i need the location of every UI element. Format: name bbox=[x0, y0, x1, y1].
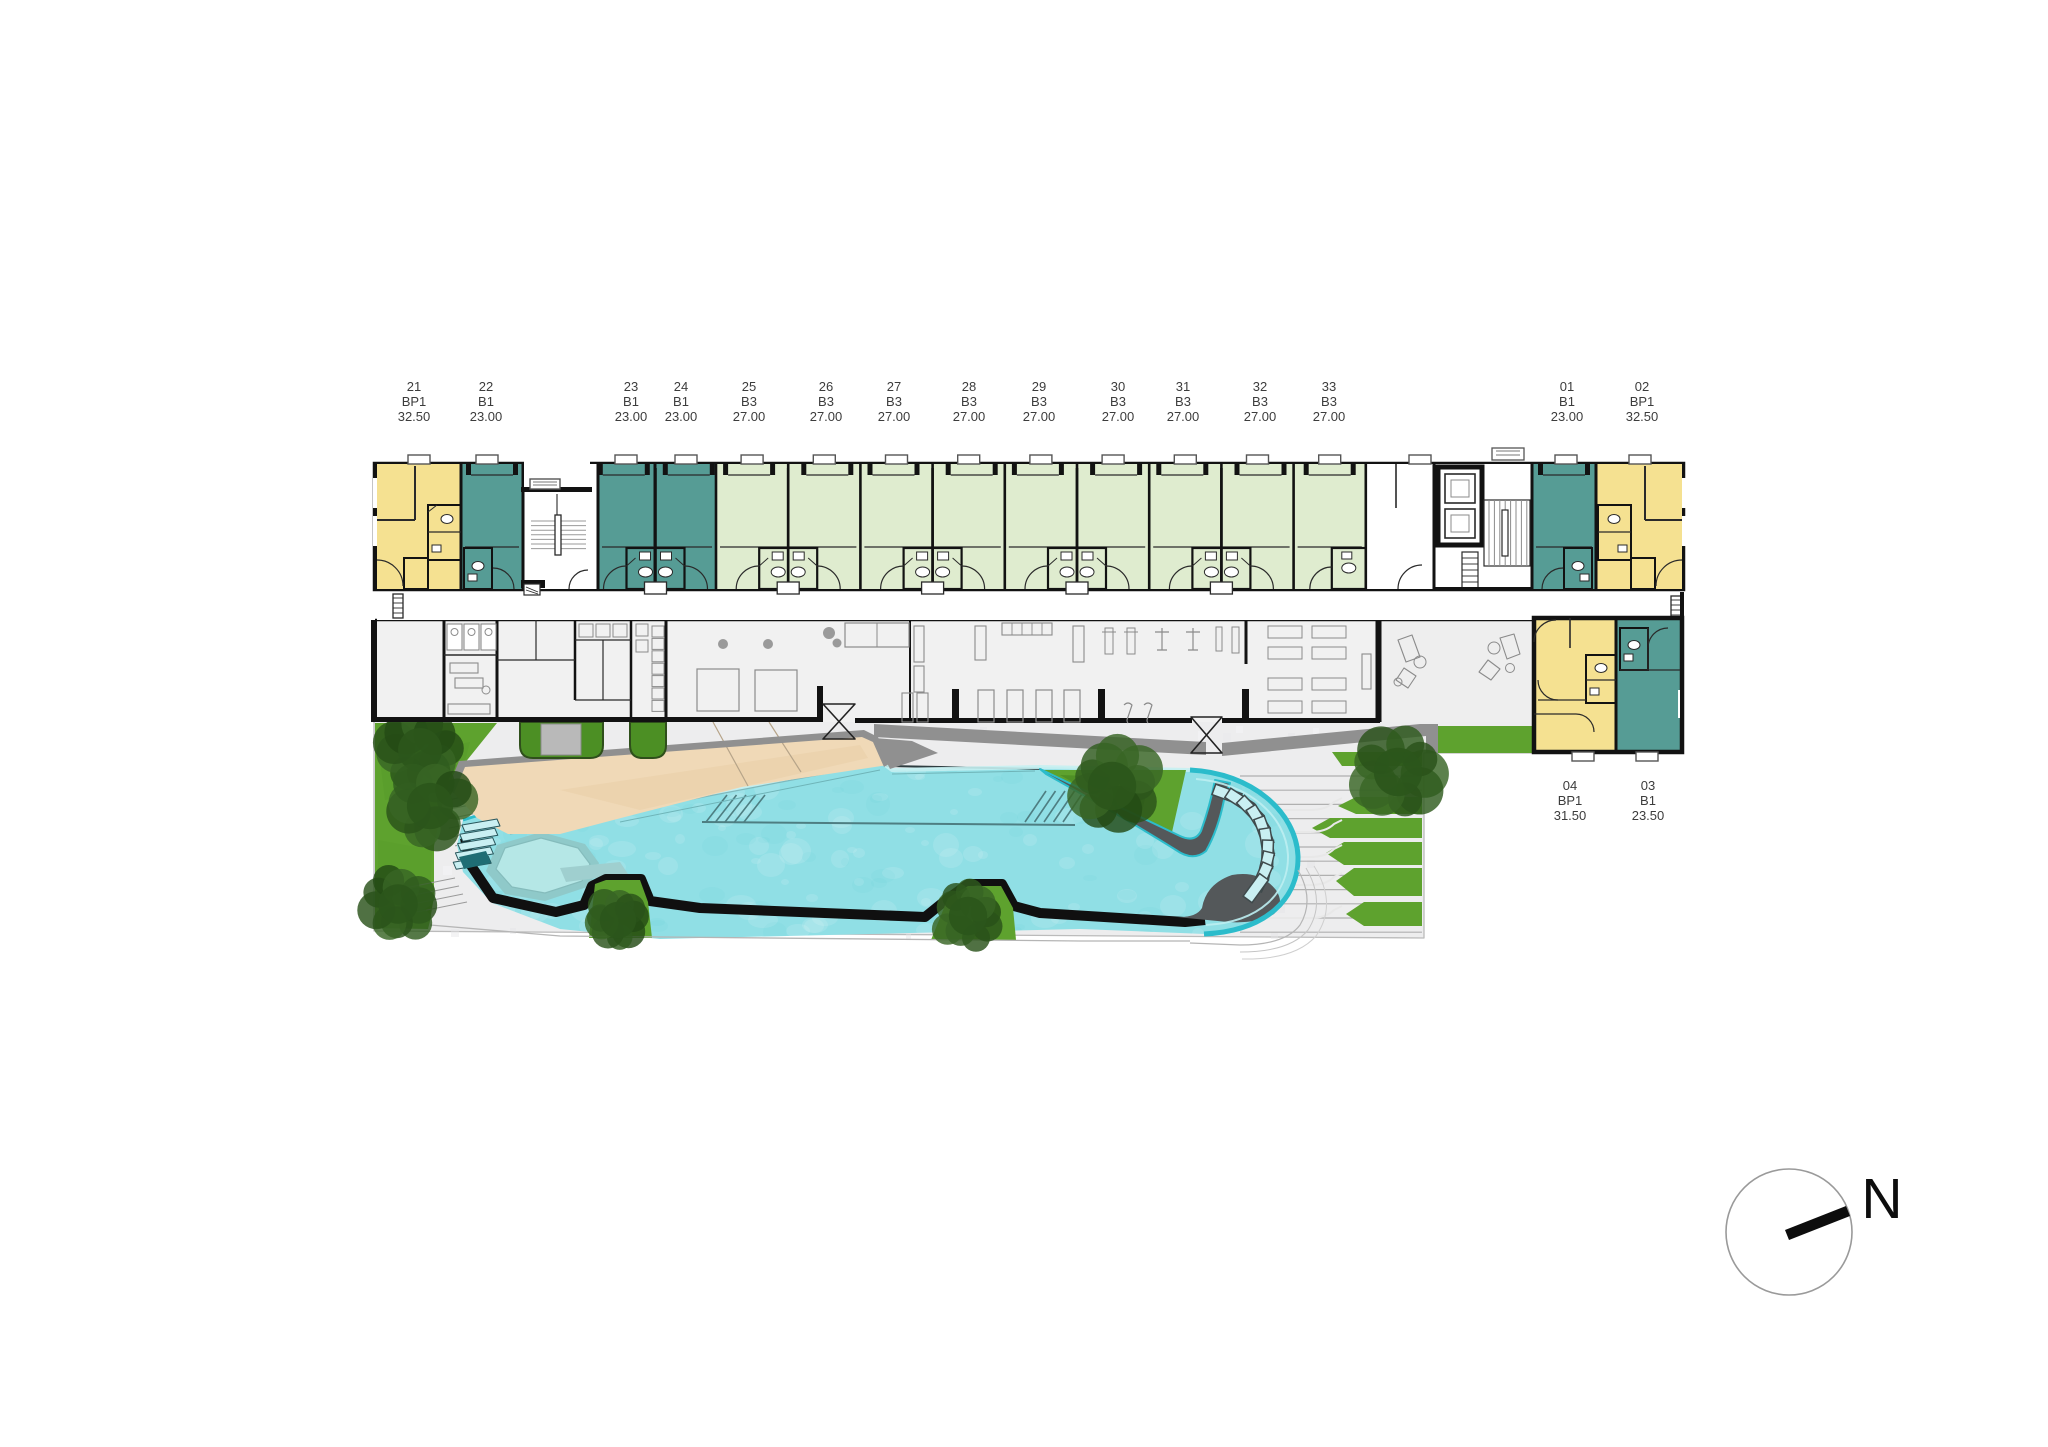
svg-text:23.50: 23.50 bbox=[1632, 808, 1665, 823]
svg-text:BP1: BP1 bbox=[402, 394, 427, 409]
svg-text:27.00: 27.00 bbox=[810, 409, 843, 424]
svg-text:B3: B3 bbox=[1110, 394, 1126, 409]
svg-text:27.00: 27.00 bbox=[1244, 409, 1277, 424]
svg-text:B3: B3 bbox=[1321, 394, 1337, 409]
svg-text:33: 33 bbox=[1322, 379, 1336, 394]
svg-text:BP1: BP1 bbox=[1630, 394, 1655, 409]
svg-text:B3: B3 bbox=[741, 394, 757, 409]
svg-text:02: 02 bbox=[1635, 379, 1649, 394]
svg-text:32.50: 32.50 bbox=[398, 409, 431, 424]
svg-text:B3: B3 bbox=[886, 394, 902, 409]
svg-text:B3: B3 bbox=[1252, 394, 1268, 409]
svg-text:B3: B3 bbox=[1031, 394, 1047, 409]
svg-text:22: 22 bbox=[479, 379, 493, 394]
svg-text:27.00: 27.00 bbox=[1023, 409, 1056, 424]
svg-text:23.00: 23.00 bbox=[1551, 409, 1584, 424]
svg-text:32.50: 32.50 bbox=[1626, 409, 1659, 424]
svg-text:04: 04 bbox=[1563, 778, 1577, 793]
svg-text:27.00: 27.00 bbox=[733, 409, 766, 424]
svg-text:B1: B1 bbox=[478, 394, 494, 409]
svg-text:24: 24 bbox=[674, 379, 688, 394]
svg-text:32: 32 bbox=[1253, 379, 1267, 394]
svg-text:23: 23 bbox=[624, 379, 638, 394]
svg-text:B3: B3 bbox=[1175, 394, 1191, 409]
svg-text:27.00: 27.00 bbox=[953, 409, 986, 424]
svg-text:26: 26 bbox=[819, 379, 833, 394]
svg-text:B3: B3 bbox=[961, 394, 977, 409]
svg-text:B1: B1 bbox=[673, 394, 689, 409]
svg-text:23.00: 23.00 bbox=[665, 409, 698, 424]
svg-text:03: 03 bbox=[1641, 778, 1655, 793]
svg-text:01: 01 bbox=[1560, 379, 1574, 394]
svg-text:27.00: 27.00 bbox=[1167, 409, 1200, 424]
svg-text:B1: B1 bbox=[1559, 394, 1575, 409]
svg-text:21: 21 bbox=[407, 379, 421, 394]
svg-text:27.00: 27.00 bbox=[1102, 409, 1135, 424]
svg-text:28: 28 bbox=[962, 379, 976, 394]
svg-text:27: 27 bbox=[887, 379, 901, 394]
svg-text:N: N bbox=[1861, 1167, 1902, 1231]
svg-text:31: 31 bbox=[1176, 379, 1190, 394]
svg-text:27.00: 27.00 bbox=[878, 409, 911, 424]
svg-text:25: 25 bbox=[742, 379, 756, 394]
svg-text:29: 29 bbox=[1032, 379, 1046, 394]
svg-text:B1: B1 bbox=[1640, 793, 1656, 808]
svg-text:B1: B1 bbox=[623, 394, 639, 409]
svg-text:BP1: BP1 bbox=[1558, 793, 1583, 808]
svg-text:23.00: 23.00 bbox=[615, 409, 648, 424]
svg-text:B3: B3 bbox=[818, 394, 834, 409]
svg-text:23.00: 23.00 bbox=[470, 409, 503, 424]
svg-text:31.50: 31.50 bbox=[1554, 808, 1587, 823]
svg-text:30: 30 bbox=[1111, 379, 1125, 394]
svg-text:27.00: 27.00 bbox=[1313, 409, 1346, 424]
